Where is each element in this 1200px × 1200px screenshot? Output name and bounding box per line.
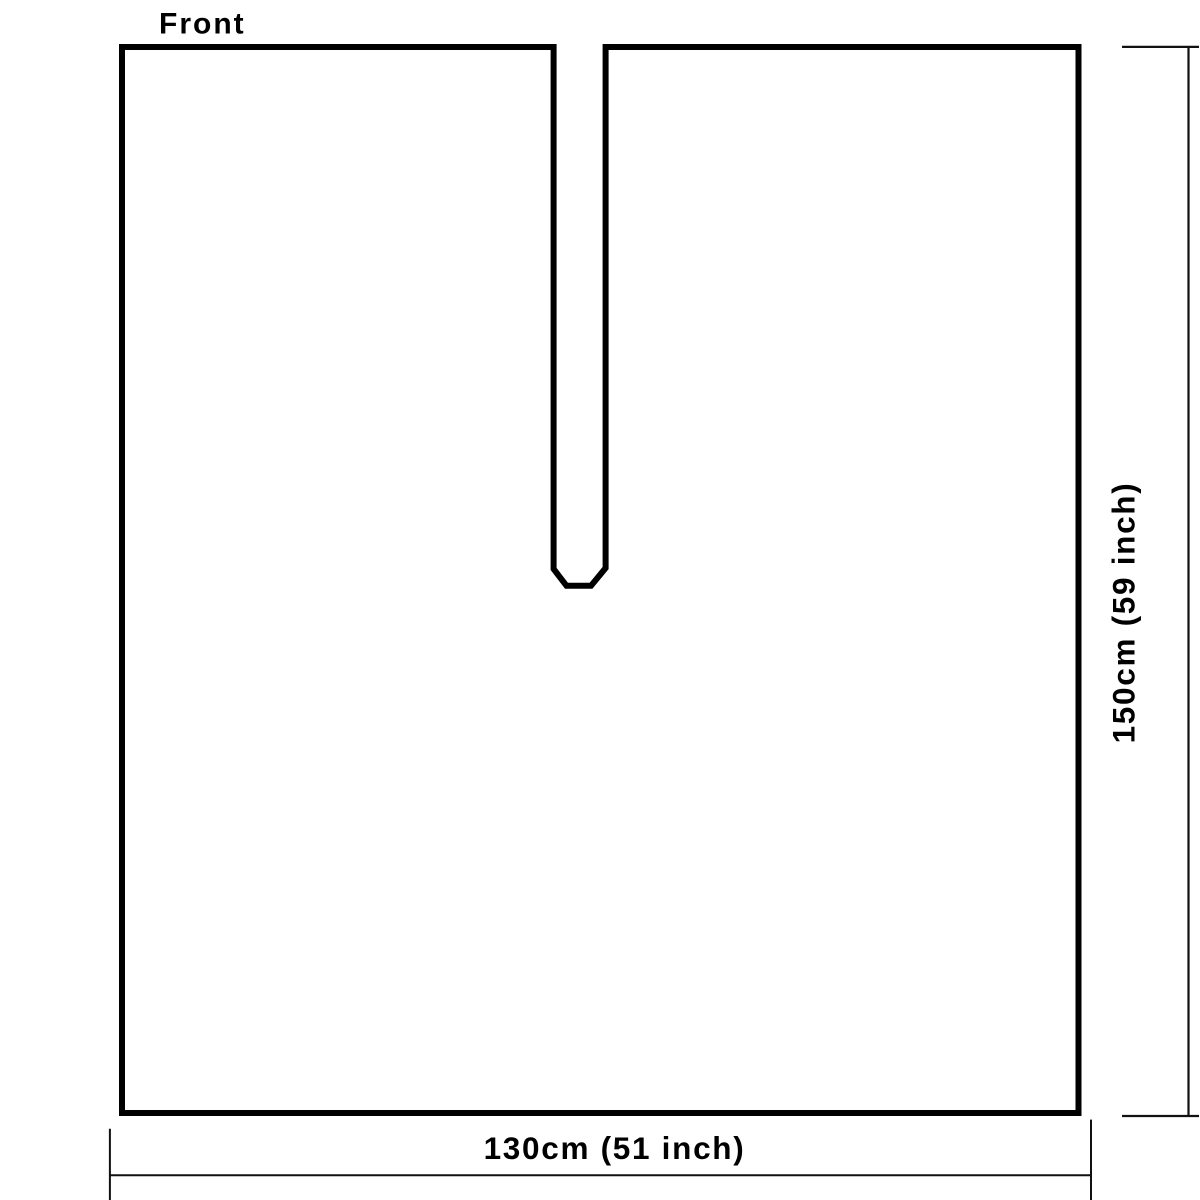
svg-text:150cm (59 inch): 150cm (59 inch) (1106, 482, 1142, 744)
svg-text:Front: Front (159, 8, 246, 41)
svg-text:130cm (51 inch): 130cm (51 inch) (484, 1130, 746, 1166)
